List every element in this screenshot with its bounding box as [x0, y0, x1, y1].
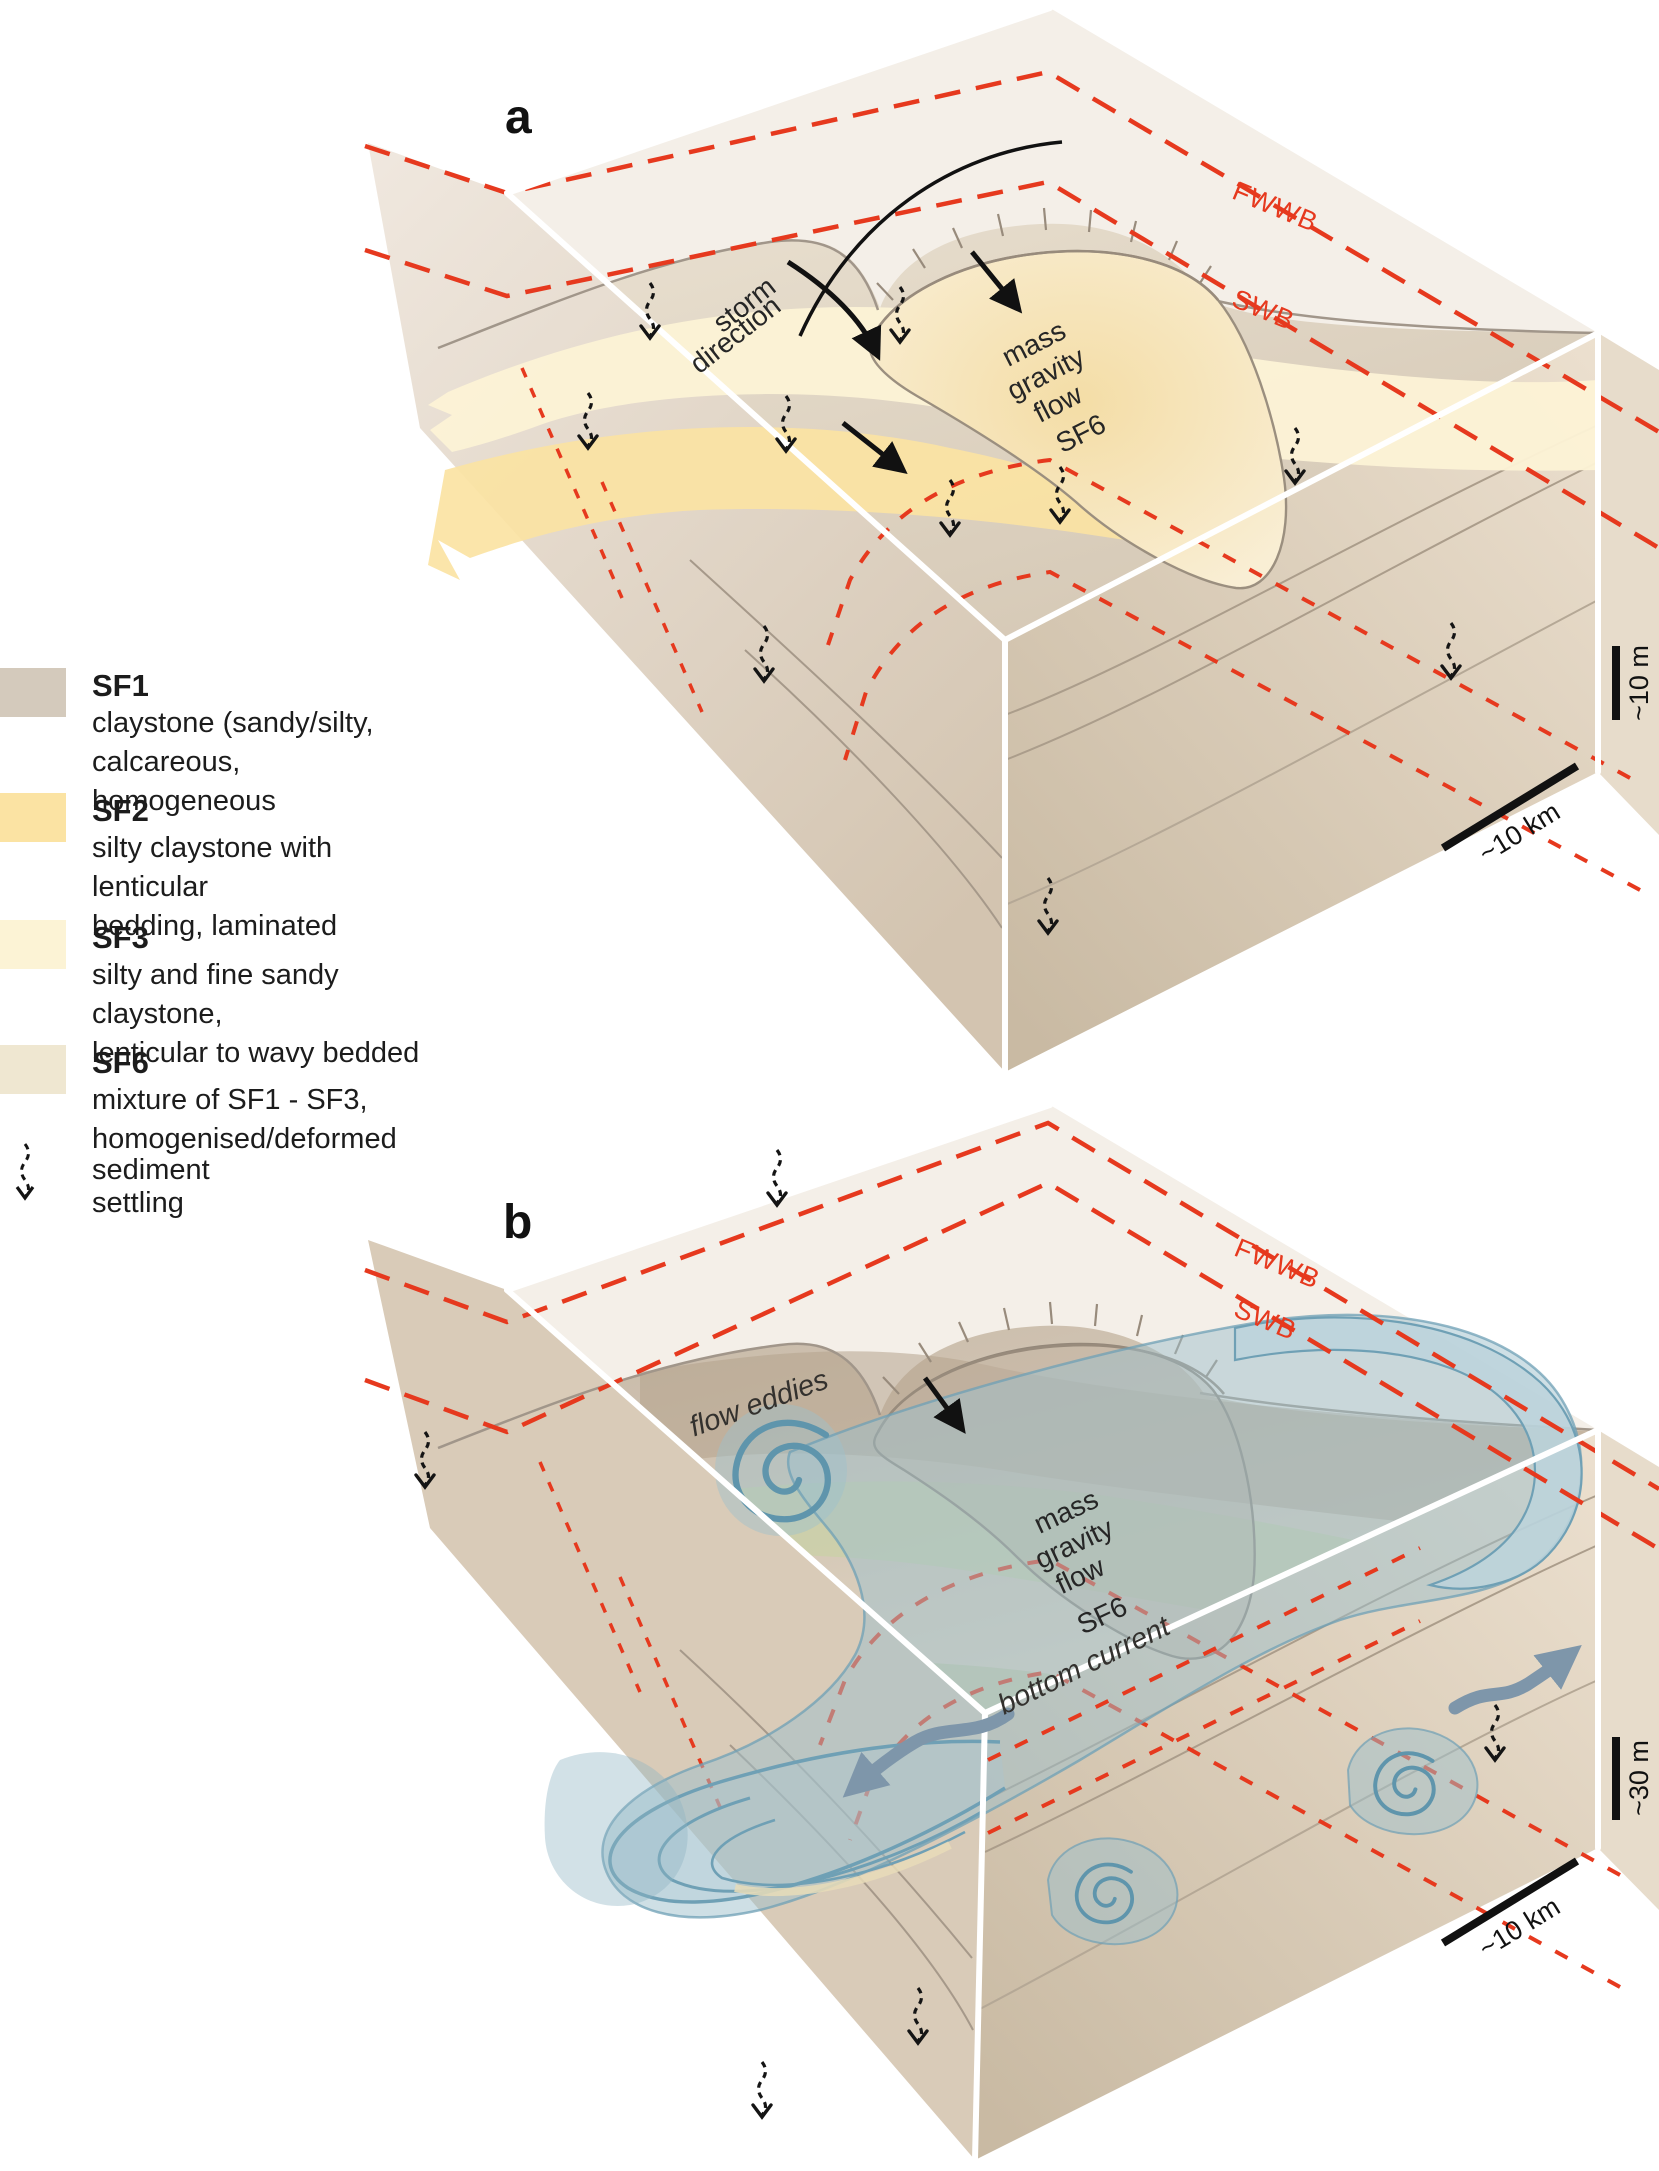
panel-b-block: b FWWB SWB flow eddies mass gravity flow… — [365, 1105, 1659, 2160]
panel-a-block: a FWWB SWB storm direction mass gravity … — [365, 8, 1659, 1072]
sf2-swatch — [0, 793, 66, 842]
sf2-title: SF2 — [92, 793, 422, 829]
sf1-title: SF1 — [92, 668, 422, 704]
panel-b-right-sliver — [1598, 1430, 1659, 1910]
sediment-settling-icon — [10, 1140, 70, 1210]
panel-b-label: b — [503, 1196, 532, 1249]
sf6-desc-line1: mixture of SF1 - SF3, — [92, 1081, 422, 1120]
sf3-swatch — [0, 920, 66, 969]
sf6-title: SF6 — [92, 1045, 422, 1081]
figure-canvas: a FWWB SWB storm direction mass gravity … — [0, 0, 1659, 2171]
panel-a-right-sliver — [1598, 333, 1659, 835]
sf1-desc-line1: claystone (sandy/silty, — [92, 704, 422, 743]
sf3-desc-line1: silty and fine sandy claystone, — [92, 956, 422, 1034]
sf3-title: SF3 — [92, 920, 422, 956]
sf6-swatch — [0, 1045, 66, 1094]
sf2-desc-line1: silty claystone with lenticular — [92, 829, 422, 907]
sediment-settling-label: sediment settling — [92, 1154, 210, 1220]
sf1-swatch — [0, 668, 66, 717]
svg-text:~30 m: ~30 m — [1624, 1740, 1654, 1816]
svg-text:~10 m: ~10 m — [1624, 645, 1654, 721]
panel-a-label: a — [505, 91, 532, 144]
